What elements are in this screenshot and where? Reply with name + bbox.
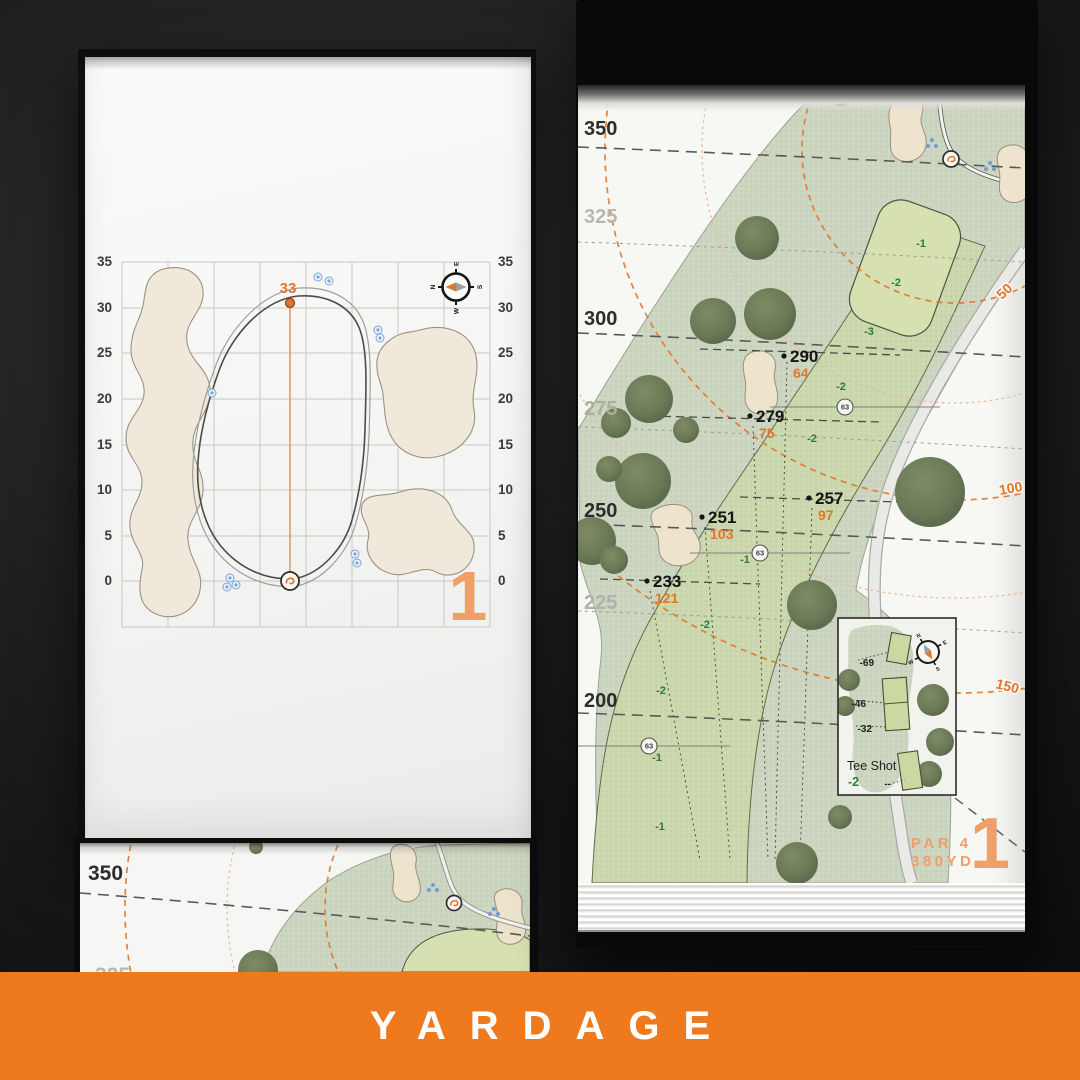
par-label: PAR 4 [911, 835, 972, 852]
axis-label: 25 [97, 345, 113, 360]
compass-w: W [454, 307, 461, 314]
right-page-top-curl [578, 85, 1025, 111]
axis-label: 0 [498, 573, 506, 588]
axis-label: 10 [97, 482, 112, 497]
left-page-top-curl [85, 57, 531, 70]
axis-label: 5 [498, 528, 506, 543]
axis-label: 15 [498, 437, 514, 452]
yardage-marker-325: 325 [95, 964, 130, 972]
axis-label: 30 [97, 300, 112, 315]
green-depth-label: 33 [280, 280, 297, 297]
yardage-banner: YARDAGE [0, 972, 1080, 1080]
arc-label-100: 100 [998, 478, 1024, 498]
green-entry-marker [447, 896, 462, 911]
elevation-label: -1 [740, 554, 750, 566]
tee-offset: -46 [852, 699, 867, 710]
sprinkler-number: 63 [645, 742, 653, 751]
green-entry-marker [943, 151, 959, 167]
yardage-marker: 250 [584, 500, 617, 522]
arc-label-150: 150 [994, 675, 1021, 696]
elevation-label: -2 [807, 433, 817, 445]
yardage-marker: 275 [584, 398, 617, 420]
axis-label: 0 [104, 573, 112, 588]
axis-label: 5 [104, 528, 112, 543]
elevation-label: -2 [836, 381, 846, 393]
green-detail-map: 33 N [95, 240, 515, 640]
yardage-marker: 350 [584, 118, 617, 140]
elevation-label: -3 [864, 326, 874, 338]
arc-distance-labels: 50 100 150 [993, 280, 1024, 697]
axis-label: 25 [498, 345, 514, 360]
axis-label: 20 [97, 391, 112, 406]
tee-offset: -- [884, 779, 891, 790]
yardage-marker: 225 [584, 592, 617, 614]
sprinkler-icons [208, 273, 384, 591]
elevation-label: -1 [916, 238, 926, 250]
axis-label: 30 [498, 300, 513, 315]
elevation-label: -1 [652, 752, 662, 764]
right-page-edge-stack [578, 883, 1025, 932]
lower-page-top-curl [80, 843, 530, 855]
yardage-marker: 300 [584, 308, 617, 330]
carry-distance: 279 [756, 407, 784, 426]
to-green-distance: 103 [710, 526, 734, 542]
banner-title: YARDAGE [346, 1006, 734, 1046]
compass-s: S [477, 284, 484, 289]
elevation-label: -2 [700, 619, 710, 631]
green-entry-marker [281, 572, 299, 590]
carry-distance: 290 [790, 347, 818, 366]
axis-label: 15 [97, 437, 113, 452]
tee-offset: -69 [860, 658, 875, 669]
compass-rose: N E S W [430, 261, 484, 314]
yardage-marker-350: 350 [88, 862, 123, 885]
left-hole-number: 1 [449, 557, 488, 635]
axis-label: 35 [97, 254, 113, 269]
right-hole-number: 1 [970, 804, 1010, 883]
to-green-distance: 64 [793, 365, 809, 381]
axis-label: 20 [498, 391, 513, 406]
green-outline [193, 288, 371, 587]
compass-n: N [430, 284, 437, 289]
to-green-distance: 121 [655, 590, 679, 606]
back-edge-dot [286, 299, 295, 308]
distance-label: 380YD [911, 853, 974, 870]
axis-label: 10 [498, 482, 513, 497]
tee-shot-inset: -69 -46 -32 -- Tee Shot -2 [835, 618, 958, 795]
axis-label: 35 [498, 254, 514, 269]
elevation-label: -2 [891, 277, 901, 289]
tee-shot-title: Tee Shot [847, 759, 897, 773]
elevation-label: -1 [655, 821, 665, 833]
tee-offset: -32 [858, 724, 873, 735]
lower-left-page: 350 325 [80, 843, 530, 972]
lower-left-hole-map: 350 325 [80, 843, 530, 972]
yardage-marker: 325 [584, 206, 617, 228]
to-green-distance: 75 [759, 425, 775, 441]
yardage-marker: 200 [584, 690, 617, 712]
yardage-book-mockup: 33 N [0, 0, 1080, 1080]
elevation-label: -2 [656, 685, 666, 697]
carry-distance: 257 [815, 489, 843, 508]
carry-distance: 251 [708, 508, 736, 527]
to-green-distance: 97 [818, 507, 834, 523]
carry-distance: 233 [653, 572, 681, 591]
hole-1-map: 63 63 63 -1 -2 -3 -2 -2 -1 -2 -2 -1 -1 [578, 85, 1025, 883]
sprinkler-number: 63 [841, 403, 849, 412]
sprinkler-number: 63 [756, 549, 764, 558]
tee-shot-elevation: -2 [848, 775, 859, 789]
greenside-bunkers [126, 268, 477, 617]
compass-e: E [454, 261, 461, 266]
